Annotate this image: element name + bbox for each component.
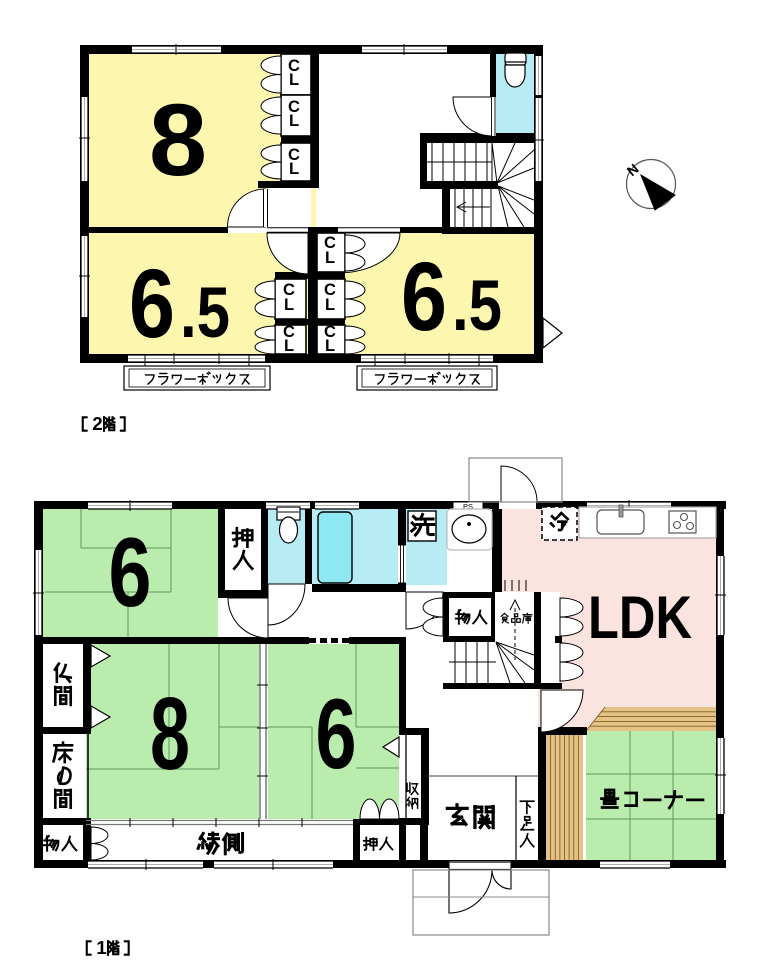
svg-text:8: 8 [149, 83, 207, 197]
svg-text:6: 6 [401, 242, 447, 351]
svg-text:6: 6 [316, 678, 357, 789]
svg-text:L: L [284, 336, 294, 355]
svg-text:L: L [284, 295, 294, 314]
svg-text:.5: .5 [180, 274, 230, 353]
svg-text:L: L [289, 111, 299, 130]
svg-text:6: 6 [129, 249, 175, 358]
svg-text:L: L [325, 295, 335, 314]
svg-text:L: L [325, 336, 335, 355]
svg-text:L: L [289, 70, 299, 89]
svg-text:LDK: LDK [588, 584, 692, 651]
svg-text:8: 8 [150, 676, 190, 791]
svg-text:6: 6 [109, 517, 152, 627]
svg-text:2: 2 [92, 413, 103, 434]
svg-text:L: L [289, 159, 299, 178]
svg-text:1: 1 [96, 937, 107, 958]
svg-text:.5: .5 [452, 267, 502, 346]
svg-text:L: L [325, 248, 335, 267]
